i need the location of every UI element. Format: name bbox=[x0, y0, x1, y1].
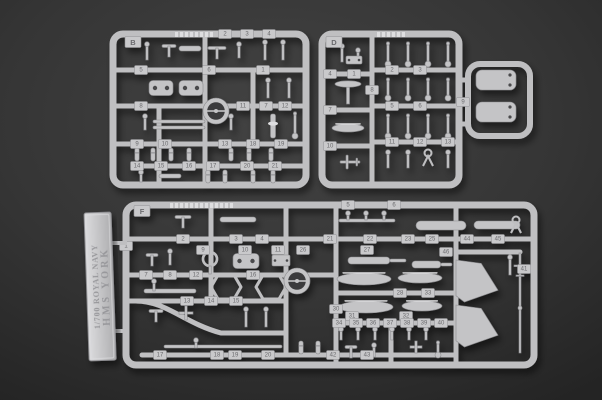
svg-text:33: 33 bbox=[425, 291, 432, 297]
part-number-tag: 7 bbox=[324, 106, 337, 115]
part-number-tag: 13 bbox=[442, 138, 455, 147]
svg-text:46: 46 bbox=[443, 250, 450, 256]
part-number-tag: 16 bbox=[247, 271, 260, 280]
part-number-tag: 26 bbox=[297, 246, 310, 255]
part-number-tag: 10 bbox=[239, 246, 252, 255]
part-number-tag: 11 bbox=[272, 246, 285, 255]
svg-text:36: 36 bbox=[370, 321, 377, 327]
part-number-tag: 5 bbox=[342, 201, 355, 210]
part-number-tag: 12 bbox=[190, 271, 203, 280]
part-number-tag: 12 bbox=[414, 138, 427, 147]
part-number-tag: 7 bbox=[140, 271, 153, 280]
svg-text:10: 10 bbox=[327, 144, 334, 150]
svg-text:11: 11 bbox=[275, 248, 282, 254]
part-number-tag: 21 bbox=[269, 162, 282, 171]
svg-text:19: 19 bbox=[278, 142, 285, 148]
part-number-tag: 2 bbox=[177, 235, 190, 244]
part-number-tag: 8 bbox=[164, 271, 177, 280]
part-number-tag: 22 bbox=[364, 235, 377, 244]
svg-text:21: 21 bbox=[272, 164, 279, 170]
svg-text:39: 39 bbox=[421, 321, 428, 327]
part-number-tag: 33 bbox=[422, 289, 435, 298]
svg-text:18: 18 bbox=[250, 142, 257, 148]
part-number-tag: 30 bbox=[330, 305, 343, 314]
part-number-tag: 11 bbox=[237, 102, 250, 111]
svg-text:42: 42 bbox=[330, 353, 337, 359]
part-number-tag: 9 bbox=[197, 246, 210, 255]
svg-text:14: 14 bbox=[134, 164, 141, 170]
svg-text:12: 12 bbox=[417, 140, 424, 146]
part-number-tag: 6 bbox=[388, 201, 401, 210]
part-number-tag: 23 bbox=[402, 235, 415, 244]
part-number-tag: 19 bbox=[229, 351, 242, 360]
svg-text:14: 14 bbox=[208, 299, 215, 305]
sprue-letter-tag: F bbox=[134, 206, 150, 217]
part-number-tag: 10 bbox=[324, 142, 337, 151]
part-number-tag: 13 bbox=[181, 297, 194, 306]
svg-text:15: 15 bbox=[158, 164, 165, 170]
svg-text:19: 19 bbox=[232, 353, 239, 359]
svg-text:16: 16 bbox=[186, 164, 193, 170]
part-number-tag: 7 bbox=[260, 102, 273, 111]
part-number-tag: 34 bbox=[333, 319, 346, 328]
part-number-tag: 15 bbox=[155, 162, 168, 171]
kit-photo: B234561811712910131819141516172021D14710… bbox=[0, 0, 602, 400]
svg-text:45: 45 bbox=[495, 237, 502, 243]
svg-text:28: 28 bbox=[397, 291, 404, 297]
svg-text:40: 40 bbox=[438, 321, 445, 327]
part-number-tag: 41 bbox=[518, 265, 531, 274]
svg-text:30: 30 bbox=[333, 307, 340, 313]
svg-text:35: 35 bbox=[353, 321, 360, 327]
svg-text:D: D bbox=[331, 38, 337, 47]
part-number-tag: 3 bbox=[241, 30, 254, 39]
svg-text:10: 10 bbox=[242, 248, 249, 254]
svg-text:43: 43 bbox=[364, 353, 371, 359]
svg-text:12: 12 bbox=[282, 104, 289, 110]
part-number-tag: 27 bbox=[361, 246, 374, 255]
svg-text:18: 18 bbox=[214, 353, 221, 359]
part-number-tag: 2 bbox=[219, 30, 232, 39]
nameplate-part: 1/700 ROYAL NAVYHMS YORK bbox=[84, 212, 116, 361]
svg-text:10: 10 bbox=[162, 142, 169, 148]
part-number-tag: 5 bbox=[386, 102, 399, 111]
part-number-tag: 3 bbox=[230, 235, 243, 244]
svg-text:17: 17 bbox=[210, 164, 217, 170]
part-number-tag: 19 bbox=[275, 140, 288, 149]
part-number-tag: 37 bbox=[384, 319, 397, 328]
part-number-tag: 2 bbox=[386, 66, 399, 75]
part-number-tag: 44 bbox=[461, 235, 474, 244]
part-number-tag: 4 bbox=[324, 70, 337, 79]
svg-text:34: 34 bbox=[336, 321, 343, 327]
part-number-tag: 39 bbox=[418, 319, 431, 328]
part-number-tag: 43 bbox=[361, 351, 374, 360]
sprue-letter-tag: D bbox=[326, 37, 342, 48]
svg-text:13: 13 bbox=[184, 299, 191, 305]
part-number-tag: 14 bbox=[205, 297, 218, 306]
svg-text:11: 11 bbox=[240, 104, 247, 110]
svg-text:26: 26 bbox=[300, 248, 307, 254]
svg-text:23: 23 bbox=[405, 237, 412, 243]
svg-text:20: 20 bbox=[244, 164, 251, 170]
part-number-tag: 6 bbox=[414, 102, 427, 111]
part-number-tag: 4 bbox=[263, 30, 276, 39]
part-number-tag: 3 bbox=[414, 66, 427, 75]
svg-text:17: 17 bbox=[157, 353, 164, 359]
part-number-tag: 1 bbox=[348, 70, 361, 79]
part-number-tag: 21 bbox=[324, 235, 337, 244]
part-number-tag: 17 bbox=[154, 351, 167, 360]
part-number-tag: 46 bbox=[440, 248, 453, 257]
part-number-tag: 8 bbox=[366, 86, 379, 95]
part-number-tag: 14 bbox=[131, 162, 144, 171]
svg-text:15: 15 bbox=[233, 299, 240, 305]
svg-text:13: 13 bbox=[222, 142, 229, 148]
part-number-tag: 12 bbox=[279, 102, 292, 111]
svg-text:22: 22 bbox=[367, 237, 374, 243]
svg-text:13: 13 bbox=[445, 140, 452, 146]
part-number-tag: 18 bbox=[211, 351, 224, 360]
part-number-tag: 38 bbox=[401, 319, 414, 328]
part-number-tag: 9 bbox=[131, 140, 144, 149]
part-number-tag: 4 bbox=[256, 235, 269, 244]
svg-text:38: 38 bbox=[404, 321, 411, 327]
svg-text:B: B bbox=[130, 38, 136, 47]
part-number-tag: 45 bbox=[492, 235, 505, 244]
svg-text:16: 16 bbox=[250, 273, 257, 279]
part-number-tag: 6 bbox=[203, 66, 216, 75]
part-number-tag: 9 bbox=[457, 98, 470, 107]
kit-photo-stage: B234561811712910131819141516172021D14710… bbox=[0, 0, 602, 400]
part-number-tag: 5 bbox=[135, 66, 148, 75]
svg-text:11: 11 bbox=[389, 140, 396, 146]
svg-text:44: 44 bbox=[464, 237, 471, 243]
svg-text:27: 27 bbox=[364, 248, 371, 254]
part-number-tag: 15 bbox=[230, 297, 243, 306]
part-number-tag: 20 bbox=[262, 351, 275, 360]
part-number-tag: 36 bbox=[367, 319, 380, 328]
svg-text:20: 20 bbox=[265, 353, 272, 359]
svg-text:37: 37 bbox=[387, 321, 394, 327]
part-number-tag: 40 bbox=[435, 319, 448, 328]
part-number-tag: 28 bbox=[394, 289, 407, 298]
part-number-tag: 13 bbox=[219, 140, 232, 149]
part-number-tag: 20 bbox=[241, 162, 254, 171]
sprue-letter-tag: B bbox=[125, 37, 141, 48]
part-number-tag: 42 bbox=[327, 351, 340, 360]
svg-text:41: 41 bbox=[521, 267, 528, 273]
part-number-tag: 8 bbox=[135, 102, 148, 111]
svg-text:12: 12 bbox=[193, 273, 200, 279]
part-number-tag: 35 bbox=[350, 319, 363, 328]
part-number-tag: 16 bbox=[183, 162, 196, 171]
part-number-tag: 18 bbox=[247, 140, 260, 149]
svg-text:21: 21 bbox=[327, 237, 334, 243]
part-number-tag: 17 bbox=[207, 162, 220, 171]
part-number-tag: 25 bbox=[426, 235, 439, 244]
svg-text:F: F bbox=[140, 207, 145, 216]
part-number-tag: 11 bbox=[386, 138, 399, 147]
part-number-tag: 10 bbox=[159, 140, 172, 149]
svg-text:25: 25 bbox=[429, 237, 436, 243]
part-number-tag: 1 bbox=[257, 66, 270, 75]
